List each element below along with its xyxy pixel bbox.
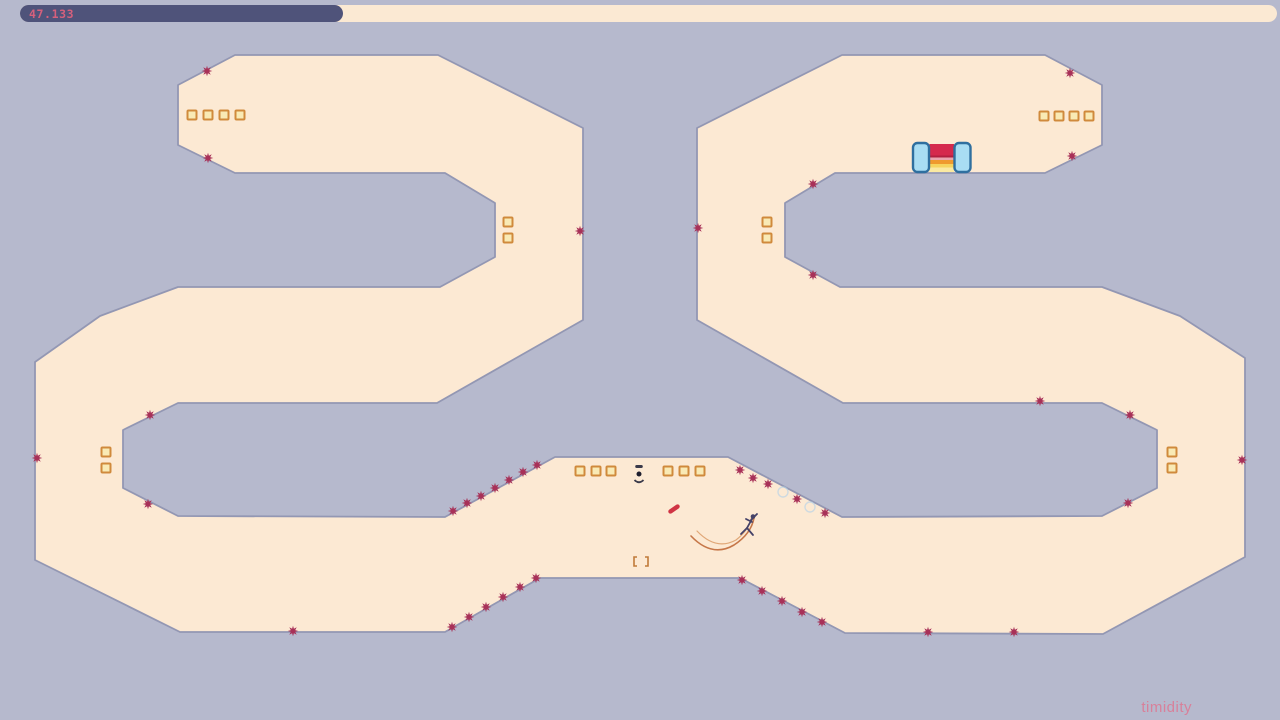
gold-piece: [504, 218, 513, 227]
gold-piece: [102, 448, 111, 457]
gold-piece: [763, 218, 772, 227]
timer-value: 47.133: [20, 7, 74, 21]
level-terrain: [35, 55, 1245, 634]
exit-door-stripe: [930, 158, 955, 161]
gold-piece: [204, 111, 213, 120]
gold-piece: [664, 467, 673, 476]
timer-track: 47.133: [20, 5, 1277, 22]
game-viewport[interactable]: 47.133 timidity: [0, 0, 1280, 720]
door-switch-top: [635, 465, 643, 468]
exit-door-stripe: [930, 164, 955, 168]
gold-piece: [680, 467, 689, 476]
exit-door-right-pillar: [955, 143, 971, 172]
exit-door-left-pillar: [913, 143, 929, 172]
exit-door-stripe: [930, 156, 955, 158]
gold-piece: [576, 467, 585, 476]
gold-piece: [1168, 464, 1177, 473]
gold-piece: [607, 467, 616, 476]
exit-door-stripe: [930, 160, 955, 164]
gold-piece: [1070, 112, 1079, 121]
gold-piece: [220, 111, 229, 120]
gold-piece: [696, 467, 705, 476]
exit-door-stripe: [930, 144, 955, 156]
gold-piece: [1085, 112, 1094, 121]
gold-piece: [188, 111, 197, 120]
timer-fill-bar: 47.133: [20, 5, 343, 22]
gold-piece: [763, 234, 772, 243]
level-canvas: [0, 0, 1280, 720]
door-switch-icon: [637, 472, 642, 477]
gold-piece: [1040, 112, 1049, 121]
level-name: timidity: [1141, 699, 1192, 716]
exit-door-stripe: [930, 168, 955, 173]
gold-piece: [504, 234, 513, 243]
gold-piece: [236, 111, 245, 120]
gold-piece: [1168, 448, 1177, 457]
gold-piece: [1055, 112, 1064, 121]
gold-piece: [102, 464, 111, 473]
gold-piece: [592, 467, 601, 476]
